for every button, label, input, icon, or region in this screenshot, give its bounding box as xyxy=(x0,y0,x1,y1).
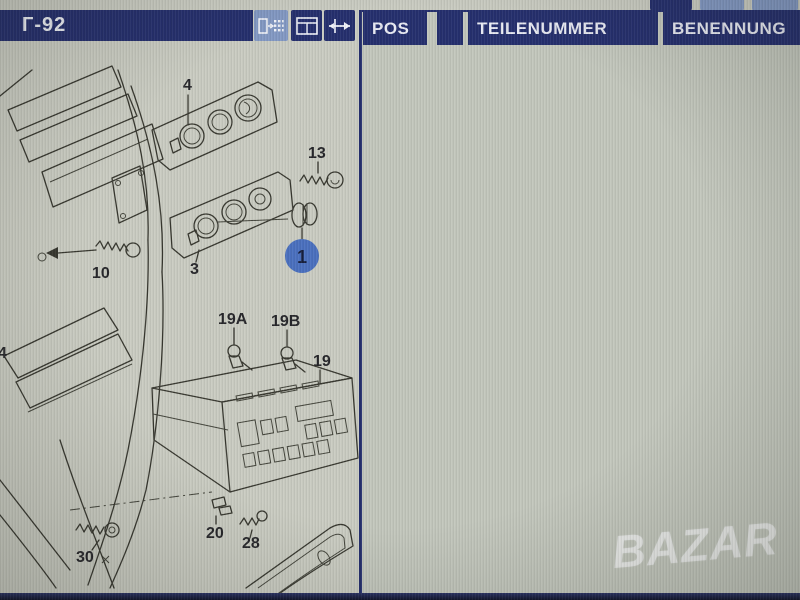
column-header-pos[interactable]: POS xyxy=(363,12,427,45)
bulb-19A: 19A xyxy=(218,311,252,370)
part-label-10[interactable]: 10 xyxy=(92,265,110,282)
part-label-13[interactable]: 13 xyxy=(308,145,326,162)
mounting-bracket xyxy=(112,166,147,223)
lower-console-outline: 4 xyxy=(0,240,163,588)
bulb-19B: 19B xyxy=(271,313,305,372)
part-label-19A[interactable]: 19A xyxy=(218,311,248,328)
part-label-28[interactable]: 28 xyxy=(242,535,260,552)
column-header-teilenummer[interactable]: TEILENUMMER xyxy=(468,12,658,45)
screw-28: 28 xyxy=(240,511,267,552)
exploded-parts-diagram: 4 3 13 xyxy=(0,10,360,593)
part-label-19B[interactable]: 19B xyxy=(271,313,300,330)
screw-10: 10 xyxy=(38,241,140,282)
trim-strip xyxy=(246,524,353,593)
parts-table: POS TEILENUMMER BENENNUNG xyxy=(362,10,800,593)
control-panel-4: 4 xyxy=(152,77,277,170)
clip-20: 20 xyxy=(206,497,232,542)
part-label-30[interactable]: 30 xyxy=(76,549,94,566)
column-header-benennung[interactable]: BENENNUNG xyxy=(663,12,800,45)
part-label-1[interactable]: 1 xyxy=(297,247,307,267)
part-label-4-partial: 4 xyxy=(0,345,7,362)
part-label-4[interactable]: 4 xyxy=(183,77,192,94)
climate-control-unit-19: 19 xyxy=(152,353,358,492)
dashboard-console-outline xyxy=(0,66,163,272)
part-label-20[interactable]: 20 xyxy=(206,525,224,542)
screw-13: 13 xyxy=(300,145,343,188)
crt-photo-screen: Г-92 xyxy=(0,0,800,600)
part-label-3[interactable]: 3 xyxy=(190,261,199,278)
drehknopf-part-1: 1 xyxy=(285,203,319,273)
part-label-19[interactable]: 19 xyxy=(313,353,331,370)
bottom-edge-bar xyxy=(0,593,800,600)
column-header-modifier[interactable] xyxy=(437,12,463,45)
control-panel-3: 3 xyxy=(170,172,293,278)
